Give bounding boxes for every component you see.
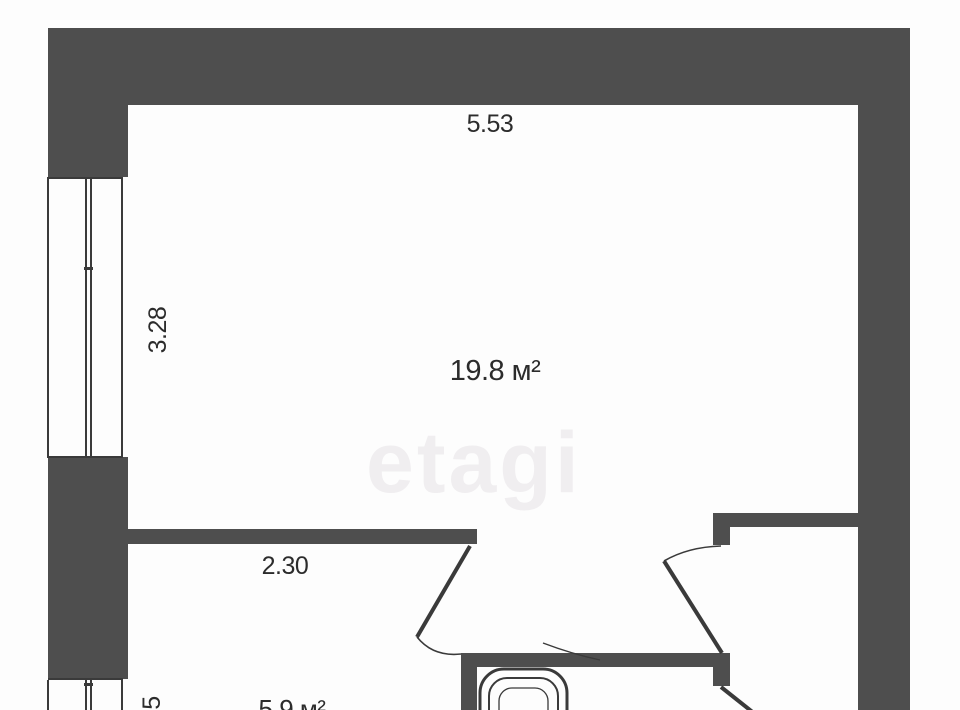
door-leaf-room [417,546,470,637]
dimension-lower-left-partial: 5 [139,653,165,710]
dimension-left-height: 3.28 [145,280,171,380]
door-leaf-bottom [721,687,755,710]
door-arc-bottom [543,643,600,660]
dimension-lower-room-width: 2.30 [225,553,345,579]
door-leaf-hall [664,561,722,653]
floor-plan: etagi 5.53 3.28 [0,0,960,710]
door-arc-hall [664,546,721,561]
room-area-lower: 5.9 м² [227,696,357,710]
dimension-top-width: 5.53 [420,111,560,137]
toilet-outline-inner [499,688,548,710]
toilet-fixture [480,669,567,710]
room-area-main: 19.8 м² [415,358,575,384]
door-arc-room [417,637,461,654]
toilet-outline-outer [480,669,567,710]
